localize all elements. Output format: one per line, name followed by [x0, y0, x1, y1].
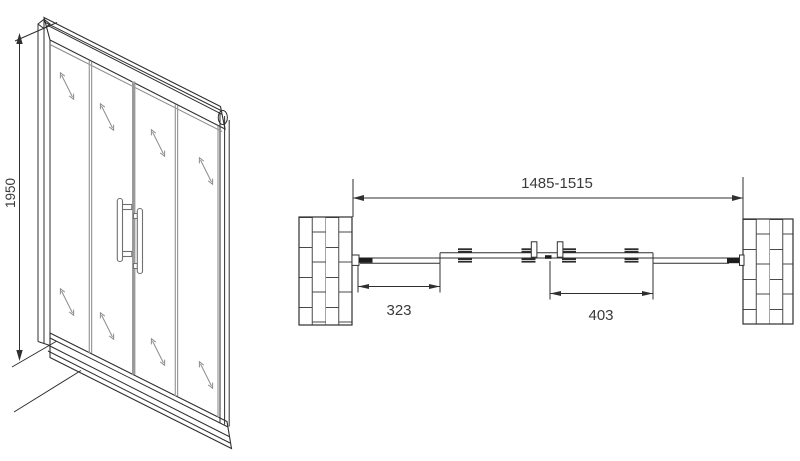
left-panel-label: 323 — [386, 302, 411, 319]
arrow-right-icon — [732, 195, 743, 201]
brick-wall-left — [299, 217, 352, 325]
wall-profile-left — [352, 255, 373, 265]
glass-marks — [62, 75, 212, 386]
arrow-down-icon — [16, 350, 22, 361]
center-marker — [545, 255, 552, 259]
arrow-right-icon — [429, 284, 440, 289]
door-handles — [117, 199, 142, 274]
floor-line — [14, 371, 81, 413]
right-panel-dimension: 403 — [550, 261, 653, 324]
height-dimension-label: 1950 — [3, 178, 18, 208]
right-panel-label: 403 — [588, 307, 613, 324]
isometric-view: 1950 — [3, 18, 232, 449]
arrow-left-icon — [550, 291, 561, 296]
left-panel-dimension: 323 — [358, 263, 440, 319]
roller-1 — [458, 248, 472, 262]
height-dimension: 1950 — [3, 23, 57, 368]
plan-view: 1485-1515 — [299, 175, 793, 325]
bottom-rail — [14, 333, 232, 449]
panel-divider-3 — [175, 104, 177, 396]
arrow-right-icon — [642, 291, 653, 296]
handle-knob-right — [557, 242, 563, 257]
handle-knob-left — [531, 242, 537, 257]
arrow-left-icon — [353, 195, 364, 201]
right-post — [220, 112, 229, 427]
glass-panels — [50, 45, 222, 418]
arrow-left-icon — [358, 284, 369, 289]
track-assembly — [352, 242, 744, 266]
overall-width-dimension: 1485-1515 — [353, 175, 743, 219]
panel-divider-1 — [89, 61, 91, 354]
roller-4 — [625, 248, 639, 262]
technical-drawing: 1950 — [0, 0, 800, 461]
brick-wall-right — [743, 219, 793, 324]
handle-left — [117, 199, 132, 262]
left-post — [38, 19, 50, 345]
panel-divider-center — [132, 82, 135, 375]
overall-width-label: 1485-1515 — [521, 175, 593, 192]
technical-drawing-page: 1950 — [0, 0, 800, 461]
roller-3 — [562, 248, 576, 262]
wall-profile-right — [727, 255, 744, 265]
